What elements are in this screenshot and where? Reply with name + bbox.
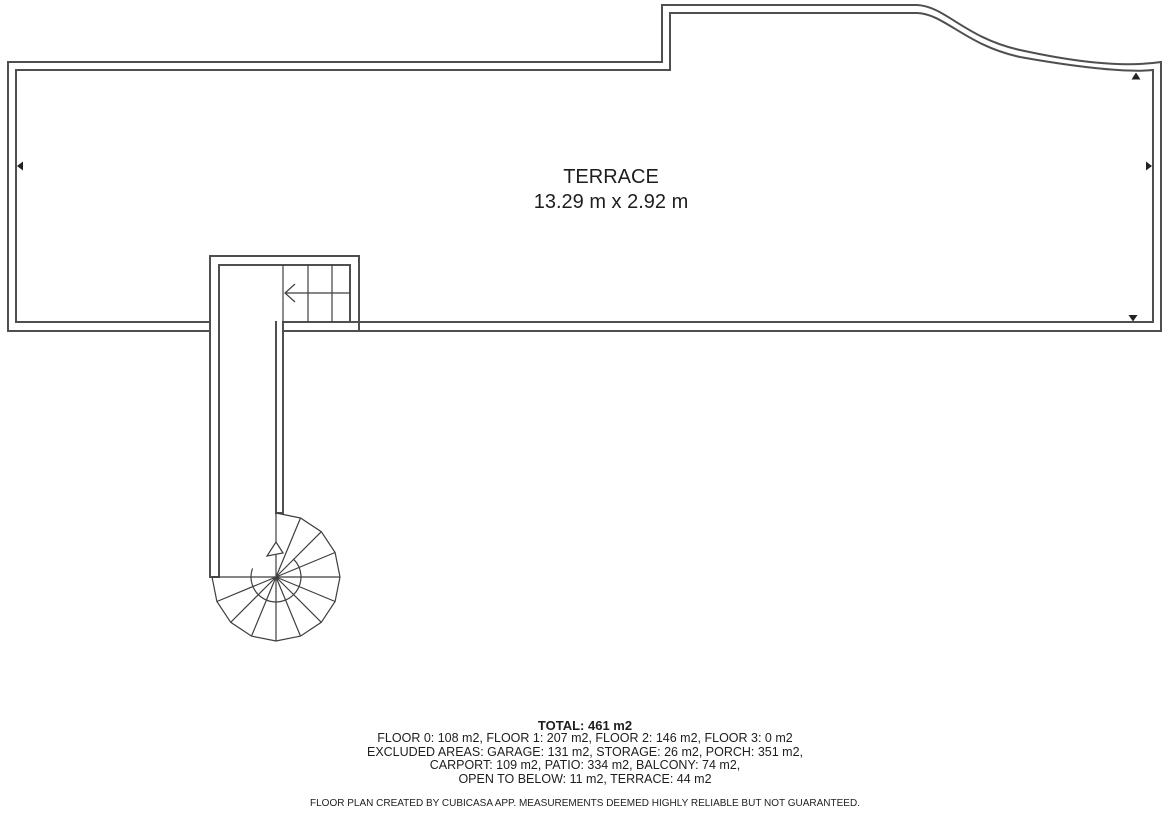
marker-down-icon	[1129, 315, 1138, 322]
disclaimer: FLOOR PLAN CREATED BY CUBICASA APP. MEAS…	[0, 798, 1170, 809]
room-label: TERRACE	[563, 165, 659, 189]
area-summary: TOTAL: 461 m2 FLOOR 0: 108 m2, FLOOR 1: …	[0, 719, 1170, 786]
marker-up-icon	[1132, 73, 1141, 80]
summary-line-excluded: EXCLUDED AREAS: GARAGE: 131 m2, STORAGE:…	[0, 746, 1170, 759]
shaft-right-wall	[276, 322, 283, 513]
stair-enclosure-outer-wall	[210, 256, 359, 577]
total-area: TOTAL: 461 m2	[0, 719, 1170, 732]
marker-right-icon	[1146, 162, 1152, 171]
stair-enclosure-inner-wall	[219, 265, 350, 577]
summary-line-carport: CARPORT: 109 m2, PATIO: 334 m2, BALCONY:…	[0, 759, 1170, 772]
spiral-direction-arrow-icon	[267, 542, 283, 556]
spiral-treads	[212, 513, 340, 641]
marker-left-icon	[17, 162, 23, 171]
spiral-staircase	[212, 513, 340, 641]
room-dimensions: 13.29 m x 2.92 m	[534, 190, 689, 214]
stairwell-walls	[210, 256, 359, 577]
floor-plan-canvas	[0, 0, 1170, 818]
upper-stairs	[283, 265, 350, 322]
summary-line-open-below: OPEN TO BELOW: 11 m2, TERRACE: 44 m2	[0, 773, 1170, 786]
summary-line-floors: FLOOR 0: 108 m2, FLOOR 1: 207 m2, FLOOR …	[0, 732, 1170, 745]
